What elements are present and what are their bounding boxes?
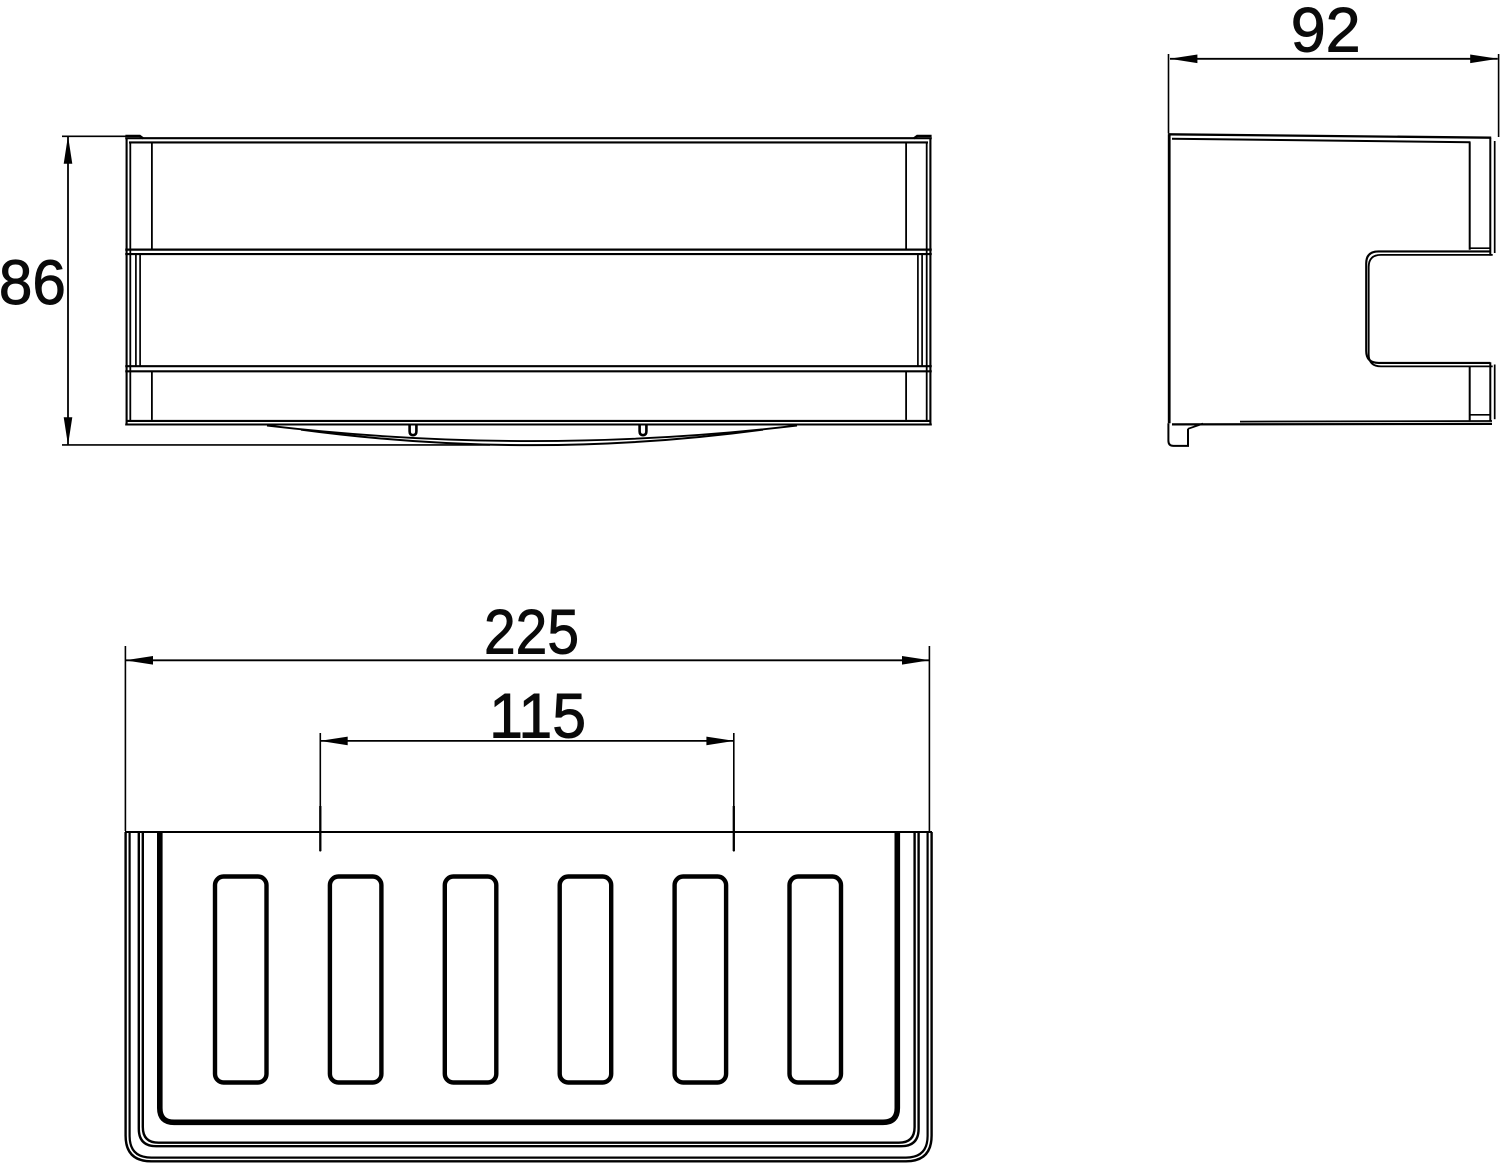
svg-text:225: 225: [484, 598, 579, 668]
svg-text:115: 115: [489, 681, 586, 751]
svg-text:86: 86: [0, 248, 66, 318]
svg-text:92: 92: [1291, 0, 1361, 65]
